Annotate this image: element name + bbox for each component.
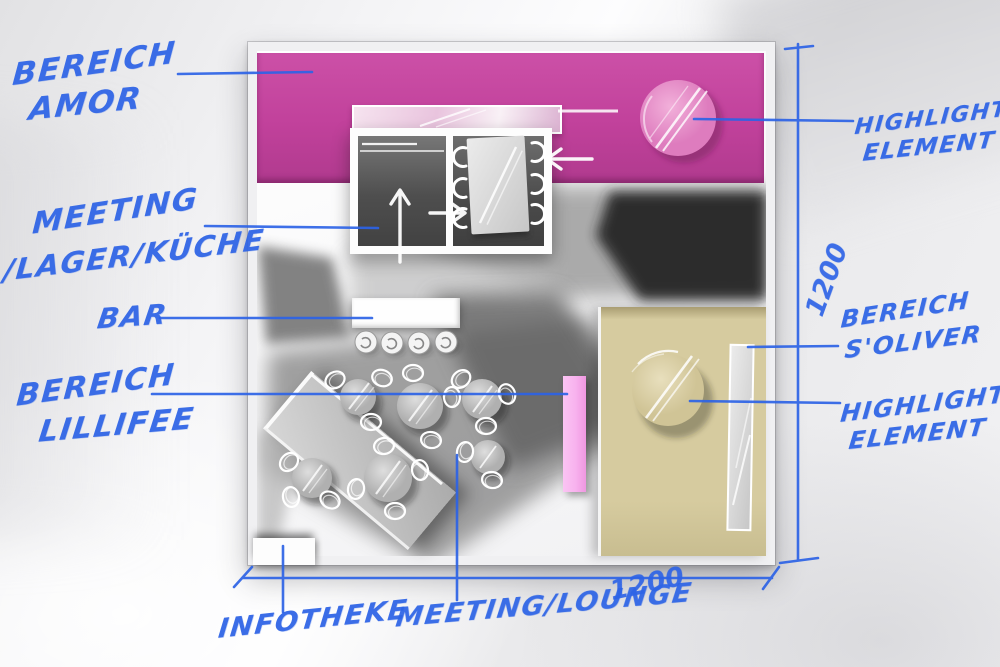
dimension-line-bottom xyxy=(234,567,779,589)
floor-plan-sketch: 1200 1200 BEREICH AMOR MEETING /LAGER/KÜ… xyxy=(0,0,1000,667)
leader-line-amor xyxy=(178,72,312,74)
leader-line-soliver xyxy=(748,346,838,347)
leader-line-highlight-right xyxy=(690,401,840,403)
annotation-ink-layer: 1200 1200 xyxy=(0,0,1000,667)
leader-line-highlight-top xyxy=(694,119,853,121)
label-bar: BAR xyxy=(95,298,170,336)
